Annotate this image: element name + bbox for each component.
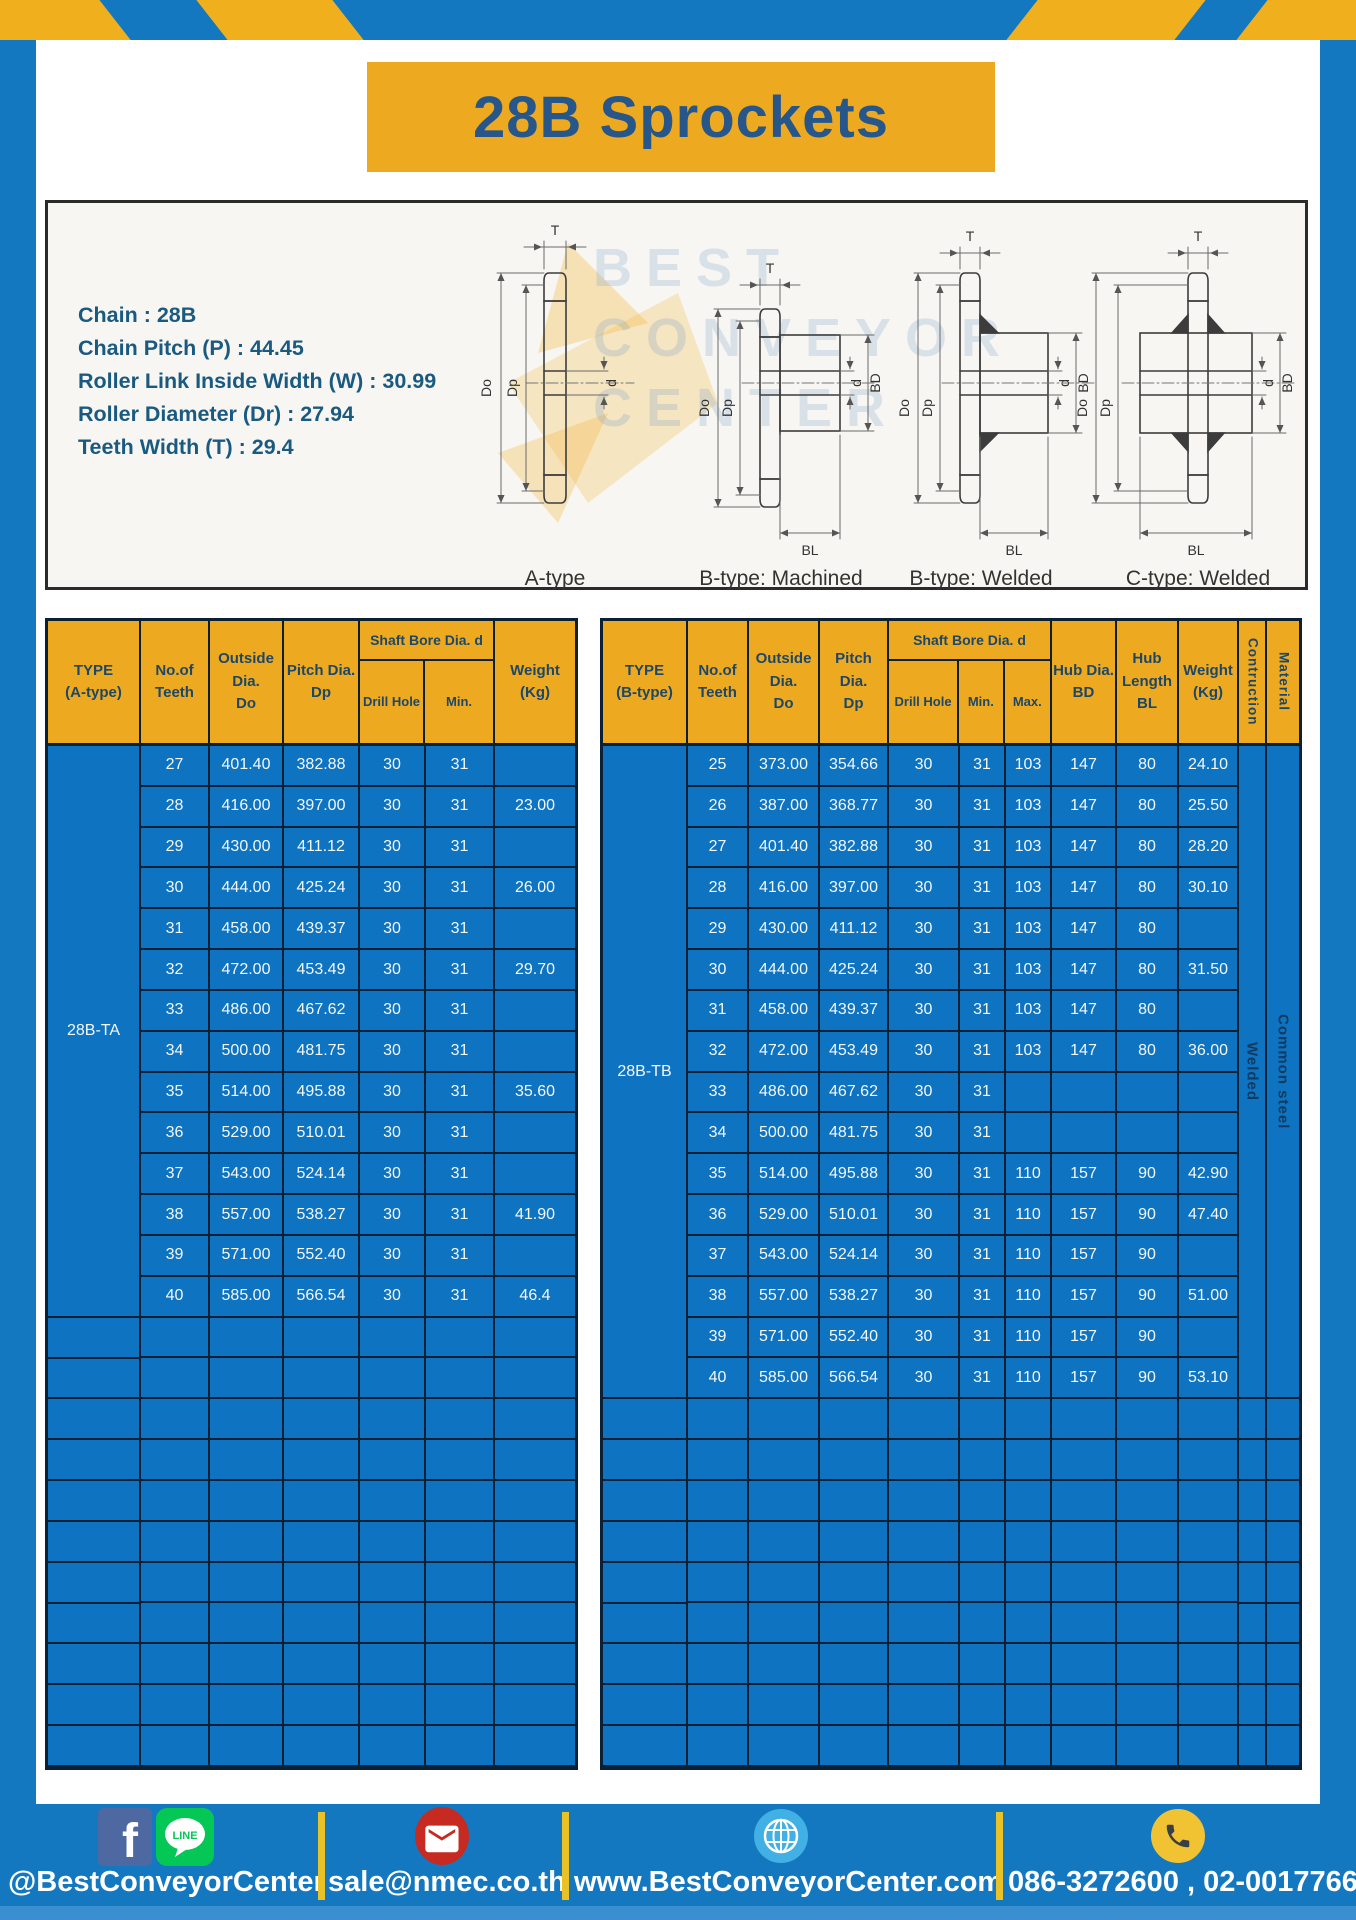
dim-label-bl: BL [801,542,818,558]
table-column-outside-dia: 401.40416.00430.00444.00458.00472.00486.… [210,746,284,1767]
table-cell [603,1481,686,1522]
table-cell: 368.77 [820,787,887,828]
table-cell [603,1522,686,1563]
table-cell [495,1113,575,1154]
table-cell [48,1440,139,1481]
table-cell: 30 [889,1073,958,1114]
table-cell [360,1358,424,1399]
table-cell [495,1726,575,1767]
table-cell: 31 [960,991,1004,1032]
table-cell [1239,1604,1265,1645]
table-cell: 31 [426,1073,493,1114]
table-cell [889,1726,958,1767]
table-cell: 571.00 [749,1318,818,1359]
facebook-icon: f [98,1808,152,1866]
table-cell [48,1481,139,1522]
table-cell: 157 [1052,1236,1115,1277]
table-cell: 31 [960,1236,1004,1277]
table-cell [889,1522,958,1563]
table-cell [820,1399,887,1440]
table-cell: 31 [426,909,493,950]
table-cell: 32 [688,1032,747,1073]
table-cell [495,1154,575,1195]
table-cell: 103 [1006,909,1050,950]
table-cell: 35 [141,1073,208,1114]
sprocket-drawing-b-type-machined: T Do Dp d BD BL B-type: Machined [696,260,883,590]
column-header-weight: Weight (Kg) [495,621,575,743]
table-cell: 80 [1117,787,1177,828]
table-cell: 30 [889,1358,958,1399]
table-cell: 30 [889,991,958,1032]
table-cell: 510.01 [284,1113,358,1154]
table-cell: 510.01 [820,1195,887,1236]
table-column-pitch-dia: 382.88397.00411.12425.24439.37453.49467.… [284,746,360,1767]
table-cell: 29 [688,909,747,950]
table-cell [360,1685,424,1726]
table-cell: 411.12 [284,828,358,869]
table-cell [284,1563,358,1604]
table-cell: 30 [360,1073,424,1114]
table-cell [1117,1481,1177,1522]
table-cell [1052,1113,1115,1154]
table-cell: 39 [688,1318,747,1359]
table-cell [210,1358,282,1399]
table-cell: 529.00 [210,1113,282,1154]
table-cell [1006,1563,1050,1604]
table-cell [48,1604,139,1645]
table-cell: 110 [1006,1154,1050,1195]
table-cell: 147 [1052,828,1115,869]
table-cell: 23.00 [495,787,575,828]
phone-text: 086-3272600 , 02-0017766 [1008,1866,1350,1899]
table-cell [360,1399,424,1440]
table-cell [1179,1522,1237,1563]
table-cell [889,1644,958,1685]
table-cell [495,1236,575,1277]
table-cell [495,1318,575,1359]
table-cell [210,1481,282,1522]
table-cell [284,1318,358,1359]
table-cell [284,1603,358,1644]
table-cell: 467.62 [284,991,358,1032]
table-cell [1117,1603,1177,1644]
table-cell: 31 [426,1154,493,1195]
column-header-teeth: No.of Teeth [688,621,749,743]
table-cell: 543.00 [210,1154,282,1195]
table-cell: 31 [960,1032,1004,1073]
table-cell: 31 [141,909,208,950]
table-column-construction: Welded [1239,746,1267,1767]
table-cell [284,1522,358,1563]
table-cell: 31 [960,1113,1004,1154]
table-cell [688,1440,747,1481]
table-cell: 103 [1006,746,1050,787]
table-cell [820,1726,887,1767]
table-cell: 495.88 [820,1154,887,1195]
table-cell: 425.24 [820,950,887,991]
table-cell: 30 [360,909,424,950]
line-label: LINE [172,1830,197,1842]
table-cell: 34 [141,1032,208,1073]
type-label-cell: 28B-TB [603,746,686,1399]
table-cell: 33 [688,1073,747,1114]
table-cell: 458.00 [749,991,818,1032]
column-header-outside-dia: Outside Dia. Do [749,621,820,743]
table-cell [1117,1399,1177,1440]
table-cell: 29 [141,828,208,869]
table-cell [1179,1073,1237,1114]
table-cell [210,1522,282,1563]
table-cell: 147 [1052,991,1115,1032]
table-cell: 53.10 [1179,1358,1237,1399]
diagram-panel: BEST CONVEYOR CENTER [45,200,1308,590]
table-cell [495,1481,575,1522]
table-cell [960,1563,1004,1604]
table-cell: 500.00 [210,1032,282,1073]
table-cell: 401.40 [210,746,282,787]
table-cell: 27 [141,746,208,787]
table-cell: 35.60 [495,1073,575,1114]
table-cell: 110 [1006,1318,1050,1359]
table-cell [141,1481,208,1522]
table-cell [820,1685,887,1726]
email-text: sale@nmec.co.th [328,1866,558,1899]
table-cell: 80 [1117,991,1177,1032]
social-handle: @BestConveyorCenter [8,1866,312,1899]
table-cell [889,1440,958,1481]
drawing-caption: B-type: Machined [699,567,862,590]
table-cell [360,1563,424,1604]
table-cell [960,1399,1004,1440]
column-header-min: Min. [959,661,1004,743]
table-cell [495,1032,575,1073]
table-column-teeth: 25262728293031323334353637383940 [688,746,749,1767]
table-cell: 430.00 [210,828,282,869]
table-cell: 444.00 [749,950,818,991]
table-column-min: 31313131313131313131313131313131 [960,746,1006,1767]
table-cell [1239,1563,1265,1604]
column-header-outside-dia: Outside Dia. Do [210,621,284,743]
table-cell [495,1685,575,1726]
table-cell: 481.75 [284,1032,358,1073]
table-cell: 42.90 [1179,1154,1237,1195]
table-cell: 538.27 [820,1277,887,1318]
table-cell: 157 [1052,1195,1115,1236]
page-title: 28B Sprockets [473,84,889,151]
table-cell: 30 [360,787,424,828]
table-cell [141,1399,208,1440]
table-cell: 397.00 [820,868,887,909]
table-cell: 38 [688,1277,747,1318]
table-cell: 529.00 [749,1195,818,1236]
dim-label-d: d [1056,379,1072,387]
table-cell [495,1563,575,1604]
table-cell [960,1440,1004,1481]
material-cell: Common steel [1267,746,1299,1399]
table-cell: 30 [889,1236,958,1277]
table-cell: 31 [426,1195,493,1236]
table-cell [1239,1522,1265,1563]
table-cell: 557.00 [749,1277,818,1318]
table-cell [1239,1399,1265,1440]
column-header-drill-hole: Drill Hole [889,661,959,743]
table-cell: 439.37 [820,991,887,1032]
table-cell: 524.14 [820,1236,887,1277]
dim-label-d: d [603,379,619,387]
table-cell: 157 [1052,1318,1115,1359]
table-cell: 472.00 [749,1032,818,1073]
type-label-cell: 28B-TA [48,746,139,1318]
table-cell [688,1726,747,1767]
table-cell [889,1399,958,1440]
table-cell: 401.40 [749,828,818,869]
table-cell: 90 [1117,1358,1177,1399]
stripe-decoration [189,0,372,40]
table-body: 28B-TA 2728293031323334353637383940 401.… [48,746,575,1767]
table-cell: 30 [360,1032,424,1073]
b-type-table: TYPE (B-type) No.of Teeth Outside Dia. D… [600,618,1302,1770]
table-column-weight: 24.1025.5028.2030.1031.5036.0042.9047.40… [1179,746,1239,1767]
table-cell: 30 [889,868,958,909]
table-cell [1179,1644,1237,1685]
table-cell [284,1685,358,1726]
table-cell [426,1399,493,1440]
table-cell [889,1563,958,1604]
table-cell: 31 [960,1154,1004,1195]
table-cell [688,1644,747,1685]
table-cell [1006,1113,1050,1154]
a-type-table: TYPE (A-type) No.of Teeth Outside Dia. D… [45,618,578,1770]
table-cell: 27 [688,828,747,869]
table-cell [749,1685,818,1726]
table-cell [1179,1113,1237,1154]
dim-label-bl: BL [1187,542,1204,558]
table-cell [1239,1726,1265,1767]
table-cell [1117,1726,1177,1767]
table-cell [1267,1685,1299,1726]
table-cell: 38 [141,1195,208,1236]
table-cell: 416.00 [210,787,282,828]
table-column-hub-dia: 1471471471471471471471471571571571571571… [1052,746,1117,1767]
table-cell: 538.27 [284,1195,358,1236]
table-cell [426,1440,493,1481]
table-cell [360,1644,424,1685]
table-cell: 411.12 [820,909,887,950]
table-cell: 444.00 [210,868,282,909]
table-cell: 30 [889,1032,958,1073]
table-cell: 30 [688,950,747,991]
table-cell [48,1399,139,1440]
spec-line: Teeth Width (T) : 29.4 [78,431,436,464]
table-cell [603,1726,686,1767]
column-header-hub-dia: Hub Dia. BD [1052,621,1117,743]
table-cell [820,1603,887,1644]
table-cell: 31 [960,950,1004,991]
table-cell [426,1644,493,1685]
table-cell: 46.4 [495,1277,575,1318]
dim-label-dp: Dp [504,379,520,397]
table-cell [1239,1481,1265,1522]
table-cell [360,1440,424,1481]
table-cell [1179,1318,1237,1359]
table-cell [749,1726,818,1767]
table-cell: 486.00 [749,1073,818,1114]
table-cell: 30 [360,991,424,1032]
table-cell: 36 [688,1195,747,1236]
table-header: TYPE (A-type) No.of Teeth Outside Dia. D… [48,621,575,746]
table-cell: 472.00 [210,950,282,991]
globe-icon [753,1808,809,1864]
table-column-material: Common steel [1267,746,1299,1767]
column-header-shaft-bore: Shaft Bore Dia. d Drill Hole Min. Max. [889,621,1052,743]
table-cell [210,1318,282,1359]
column-header-construction: Contruction [1239,621,1267,743]
table-cell [360,1522,424,1563]
table-cell [141,1603,208,1644]
stripe-decoration [1229,0,1356,40]
table-cell [688,1522,747,1563]
table-cell: 90 [1117,1318,1177,1359]
table-column-weight: 23.0026.0029.7035.6041.9046.4 [495,746,575,1767]
table-cell [1006,1603,1050,1644]
table-cell: 31 [960,868,1004,909]
table-cell: 382.88 [284,746,358,787]
bottom-border-strip [0,1906,1356,1920]
table-cell: 147 [1052,909,1115,950]
table-cell: 30.10 [1179,868,1237,909]
table-cell [1052,1685,1115,1726]
dim-label-d: d [1260,379,1276,387]
table-cell [495,746,575,787]
stripe-decoration [0,0,138,40]
table-cell [495,991,575,1032]
table-cell [284,1644,358,1685]
phone-icon [1150,1808,1206,1864]
table-cell: 31 [960,1358,1004,1399]
table-cell: 30 [360,1113,424,1154]
table-cell [1006,1644,1050,1685]
footer-divider [996,1812,1003,1900]
table-cell [688,1603,747,1644]
top-border-band [0,0,1356,40]
table-cell: 467.62 [820,1073,887,1114]
table-cell: 524.14 [284,1154,358,1195]
column-header-shaft-bore: Shaft Bore Dia. d Drill Hole Min. [360,621,495,743]
table-cell: 458.00 [210,909,282,950]
table-cell: 103 [1006,950,1050,991]
table-cell [1179,1726,1237,1767]
column-header-weight: Weight (Kg) [1179,621,1239,743]
table-cell [603,1399,686,1440]
table-cell: 103 [1006,828,1050,869]
table-column-type: 28B-TA [48,746,141,1767]
table-cell [820,1644,887,1685]
table-cell [141,1726,208,1767]
table-cell [1179,1603,1237,1644]
table-cell [1052,1522,1115,1563]
table-cell: 453.49 [284,950,358,991]
table-cell [426,1726,493,1767]
column-header-hub-length: Hub Length BL [1117,621,1179,743]
table-cell: 31 [426,1277,493,1318]
table-cell: 41.90 [495,1195,575,1236]
drawing-caption: B-type: Welded [909,567,1052,590]
table-column-drill-hole: 30303030303030303030303030303030 [889,746,960,1767]
website-text: www.BestConveyorCenter.com [574,1866,988,1899]
table-cell: 47.40 [1179,1195,1237,1236]
table-cell [1052,1644,1115,1685]
table-cell [495,1440,575,1481]
table-cell [1006,1073,1050,1114]
table-cell [960,1726,1004,1767]
table-cell [426,1318,493,1359]
table-cell: 543.00 [749,1236,818,1277]
table-cell [210,1603,282,1644]
line-icon: LINE [156,1808,214,1866]
table-cell: 31 [426,828,493,869]
table-cell: 552.40 [820,1318,887,1359]
table-cell: 31 [960,1277,1004,1318]
table-cell [1179,991,1237,1032]
dim-label-t: T [766,260,775,276]
table-cell: 110 [1006,1277,1050,1318]
table-cell: 40 [688,1358,747,1399]
table-cell: 31 [960,1073,1004,1114]
table-cell: 90 [1117,1195,1177,1236]
svg-text:f: f [122,1815,139,1866]
table-cell: 110 [1006,1195,1050,1236]
table-cell [1267,1563,1299,1604]
table-cell [495,1603,575,1644]
table-cell: 40 [141,1277,208,1318]
table-cell [1239,1440,1265,1481]
table-cell: 90 [1117,1154,1177,1195]
table-cell [960,1603,1004,1644]
table-cell: 103 [1006,868,1050,909]
table-cell [1052,1603,1115,1644]
table-cell: 37 [141,1154,208,1195]
table-cell: 31 [426,746,493,787]
column-header-teeth: No.of Teeth [141,621,210,743]
column-header-min: Min. [425,661,493,743]
table-cell: 80 [1117,868,1177,909]
table-cell: 31 [688,991,747,1032]
table-cell [1117,1522,1177,1563]
table-cell: 30 [889,950,958,991]
table-cell [495,1399,575,1440]
table-cell: 147 [1052,787,1115,828]
table-cell: 373.00 [749,746,818,787]
table-cell [749,1563,818,1604]
table-cell [960,1522,1004,1563]
table-cell: 110 [1006,1358,1050,1399]
table-cell [889,1685,958,1726]
table-cell: 31 [426,991,493,1032]
table-cell: 28 [688,868,747,909]
spec-line: Roller Link Inside Width (W) : 30.99 [78,365,436,398]
table-cell [284,1440,358,1481]
table-cell [48,1644,139,1685]
table-cell [603,1563,686,1604]
dim-label-t: T [1194,228,1203,244]
dim-label-bd: BD [1279,373,1295,392]
table-cell: 26 [688,787,747,828]
table-cell [1052,1440,1115,1481]
table-cell: 80 [1117,950,1177,991]
table-cell [1052,1563,1115,1604]
dim-label-do: Do [896,399,912,417]
table-cell [1117,1563,1177,1604]
